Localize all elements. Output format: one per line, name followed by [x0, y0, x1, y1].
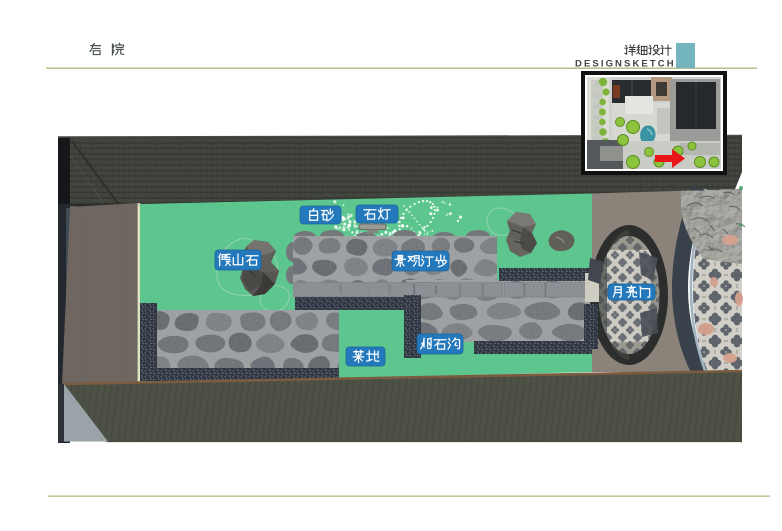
svg-text:DESIGNSKETCH: DESIGNSKETCH: [575, 59, 676, 70]
